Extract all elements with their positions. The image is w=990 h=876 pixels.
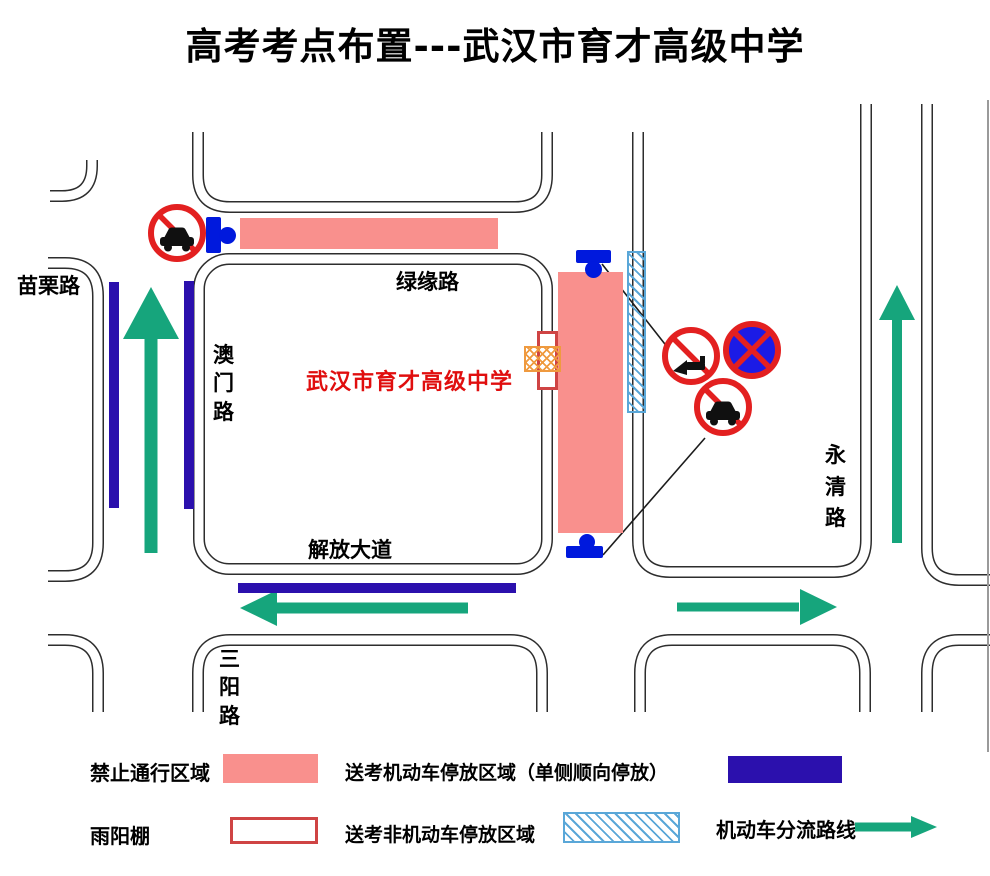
no-stopping-sign (722, 320, 782, 380)
traffic-layout-diagram: 高考考点布置---武汉市育才高级中学 (0, 0, 990, 876)
car-parking-strip-aomen-west (109, 282, 119, 508)
legend-swatch-car-parking (728, 756, 842, 783)
road-label-sanyang: 三阳路 (219, 645, 243, 730)
school-gate (524, 346, 561, 372)
school-name-label: 武汉市育才高级中学 (306, 364, 513, 396)
legend-label-car-parking: 送考机动车停放区域（单侧顺向停放） (345, 758, 668, 785)
car-parking-strip-aomen-east (184, 281, 194, 509)
non-motor-parking-strip (627, 251, 646, 413)
road-label-jiefang: 解放大道 (308, 534, 392, 564)
legend-swatch-shelter (230, 817, 318, 844)
legend-label-non-motor-parking: 送考非机动车停放区域 (345, 820, 535, 847)
road-label-miaoli: 苗栗路 (17, 270, 80, 300)
no-entry-zone-lvyuan (240, 218, 498, 249)
no-motor-vehicles-sign-east (693, 377, 753, 437)
no-motor-vehicles-sign-nw (147, 203, 207, 263)
flow-arrow-jiefang-west (240, 590, 468, 626)
road-label-yongqing: 永清路 (825, 440, 849, 535)
flow-arrow-aomen-north (123, 287, 179, 553)
school-block-border (199, 259, 547, 569)
no-entry-zone-east-lane (558, 272, 623, 533)
legend-swatch-non-motor-parking (563, 812, 680, 843)
legend-label-no-entry: 禁止通行区域 (90, 757, 210, 786)
flow-arrow-yongqing-north (879, 285, 915, 543)
legend-label-shelter: 雨阳棚 (90, 820, 150, 849)
legend-label-flow-route: 机动车分流路线 (716, 814, 856, 843)
car-parking-strip-jiefang (238, 583, 516, 593)
flow-arrow-jiefang-east (677, 589, 837, 625)
legend-swatch-flow-route (855, 813, 940, 841)
road-label-aomen: 澳门路 (213, 341, 237, 426)
road-network (0, 0, 990, 876)
road-label-lvyuan: 绿缘路 (396, 266, 459, 296)
legend-swatch-no-entry (223, 754, 318, 783)
